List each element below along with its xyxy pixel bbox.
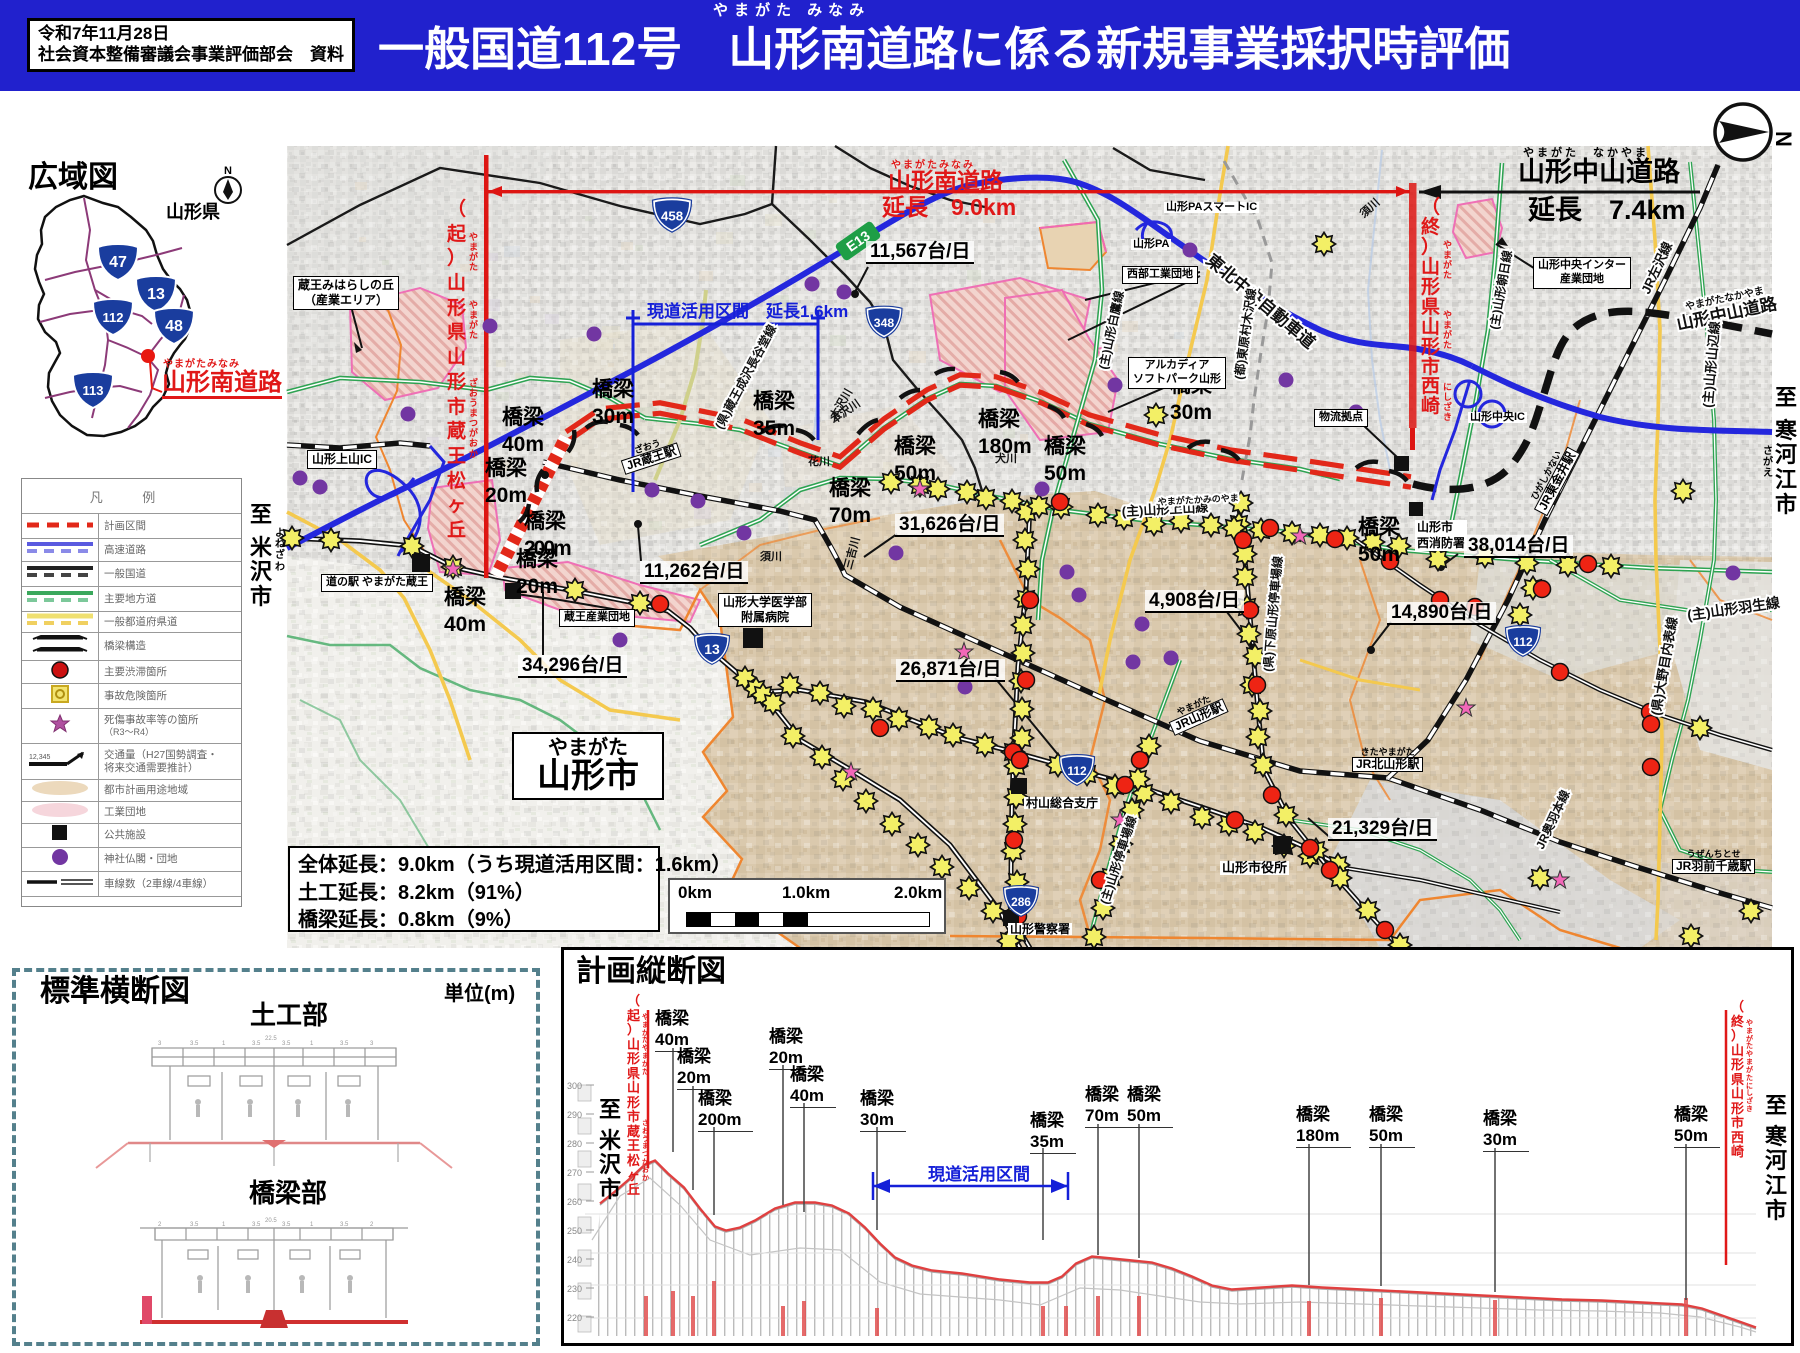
svg-text:12,345: 12,345 bbox=[29, 754, 51, 761]
